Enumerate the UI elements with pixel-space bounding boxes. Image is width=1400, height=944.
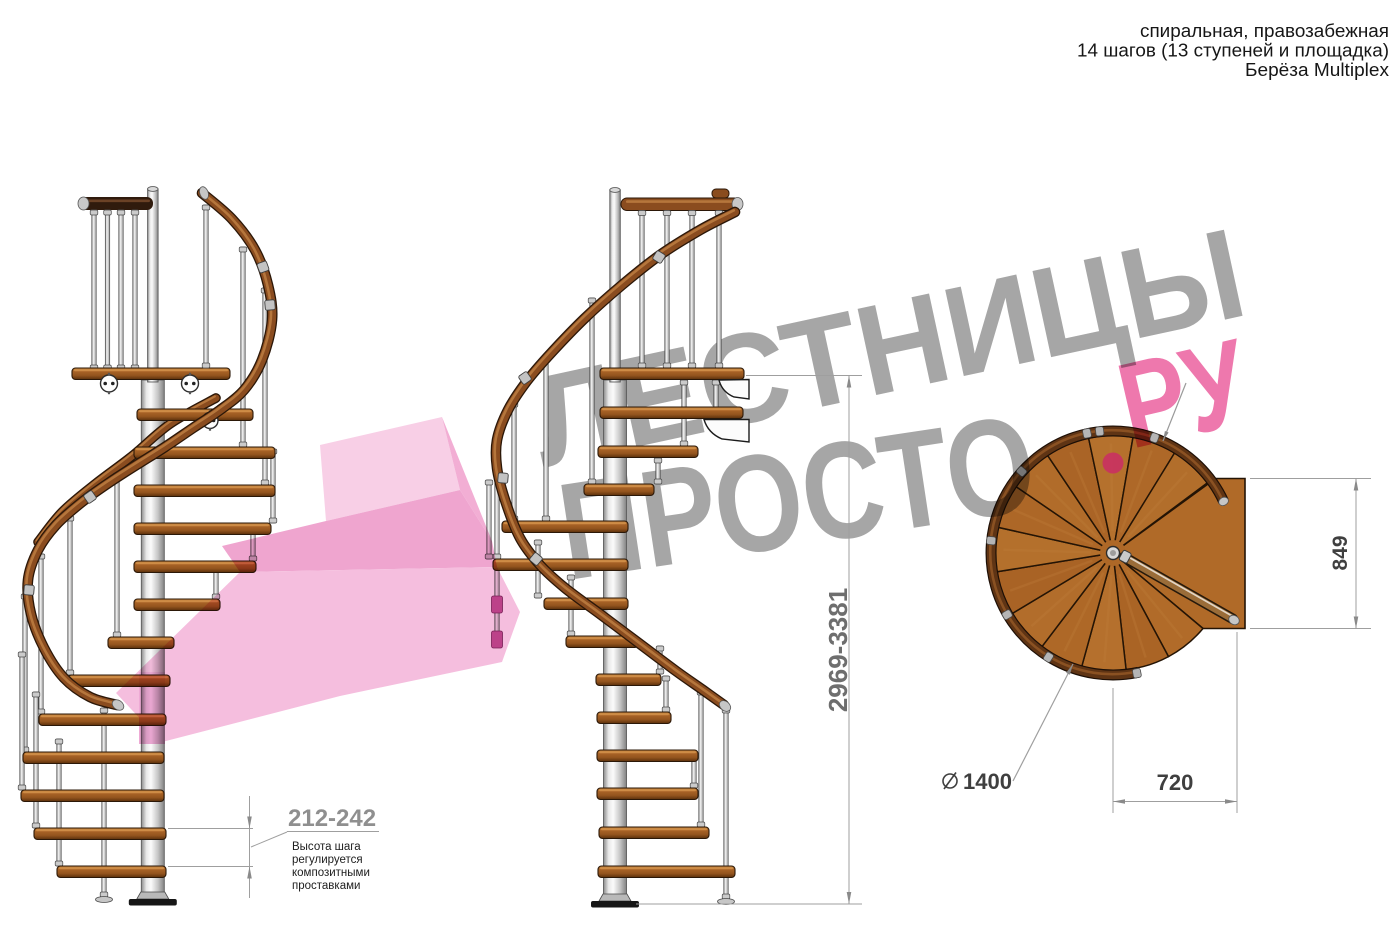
svg-text:проставками: проставками bbox=[292, 880, 360, 892]
svg-text:Высота шага: Высота шага bbox=[292, 841, 361, 853]
svg-text:14 шагов (13 ступеней и площад: 14 шагов (13 ступеней и площадка) bbox=[1077, 41, 1389, 61]
svg-text:спиральная, правозабежная: спиральная, правозабежная bbox=[1140, 21, 1389, 41]
svg-text:Берёза Multiplex: Берёза Multiplex bbox=[1245, 60, 1389, 80]
svg-text:1400: 1400 bbox=[963, 769, 1012, 794]
svg-text:720: 720 bbox=[1157, 770, 1194, 795]
svg-text:2969-3381: 2969-3381 bbox=[823, 588, 853, 712]
svg-text:композитными: композитными bbox=[292, 867, 370, 879]
svg-text:регулируется: регулируется bbox=[292, 854, 363, 866]
svg-text:849: 849 bbox=[1329, 535, 1352, 570]
svg-text:212-242: 212-242 bbox=[288, 805, 376, 832]
